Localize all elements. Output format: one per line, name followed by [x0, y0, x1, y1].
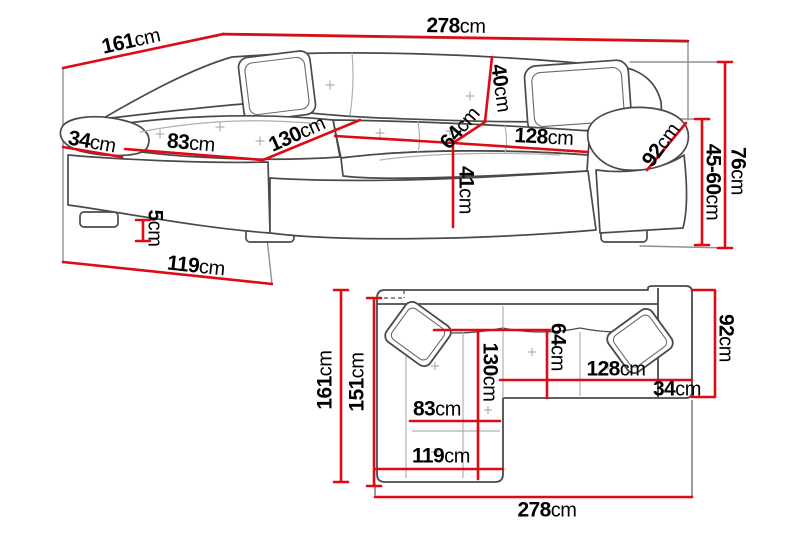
- perspective-sofa-drawing: [60, 35, 729, 284]
- dim-label-inner-depth-plan: 151cm: [347, 352, 368, 411]
- dim-label-chaise-width-plan: 83cm: [413, 399, 461, 420]
- extent-line-floor: [640, 246, 729, 248]
- dim-label-width-plan: 278cm: [517, 500, 576, 521]
- dim-label-leg-height: 5cm: [145, 210, 166, 247]
- dim-label-seat-width-plan: 128cm: [586, 359, 645, 380]
- sofa-dimension-diagram: 161cm 278cm 40cm 64cm 128cm 92cm 76cm 45…: [0, 0, 800, 533]
- dim-label-armrest-depth-plan: 92cm: [716, 314, 737, 362]
- dim-label-seat-height: 41cm: [456, 166, 477, 214]
- dim-label-width-top: 278cm: [426, 15, 485, 37]
- dim-label-seat-width-top: 128cm: [514, 125, 574, 149]
- diagram-canvas: [0, 0, 800, 533]
- main-front-face: [270, 171, 596, 239]
- dim-label-chaise-width-top: 83cm: [166, 130, 216, 155]
- dim-label-armrest-width-plan: 34cm: [653, 379, 701, 400]
- dim-label-seat-depth-plan: 64cm: [548, 323, 569, 371]
- dim-label-depth-plan: 161cm: [315, 350, 336, 409]
- dim-label-seat-height-range: 45-60cm: [703, 144, 724, 221]
- dim-label-chaise-length-plan: 130cm: [480, 342, 501, 401]
- pillow-left: [237, 50, 316, 122]
- dim-label-chaise-front-plan: 119cm: [412, 446, 470, 467]
- sofa-leg: [80, 212, 118, 227]
- dim-label-total-height: 76cm: [728, 147, 749, 195]
